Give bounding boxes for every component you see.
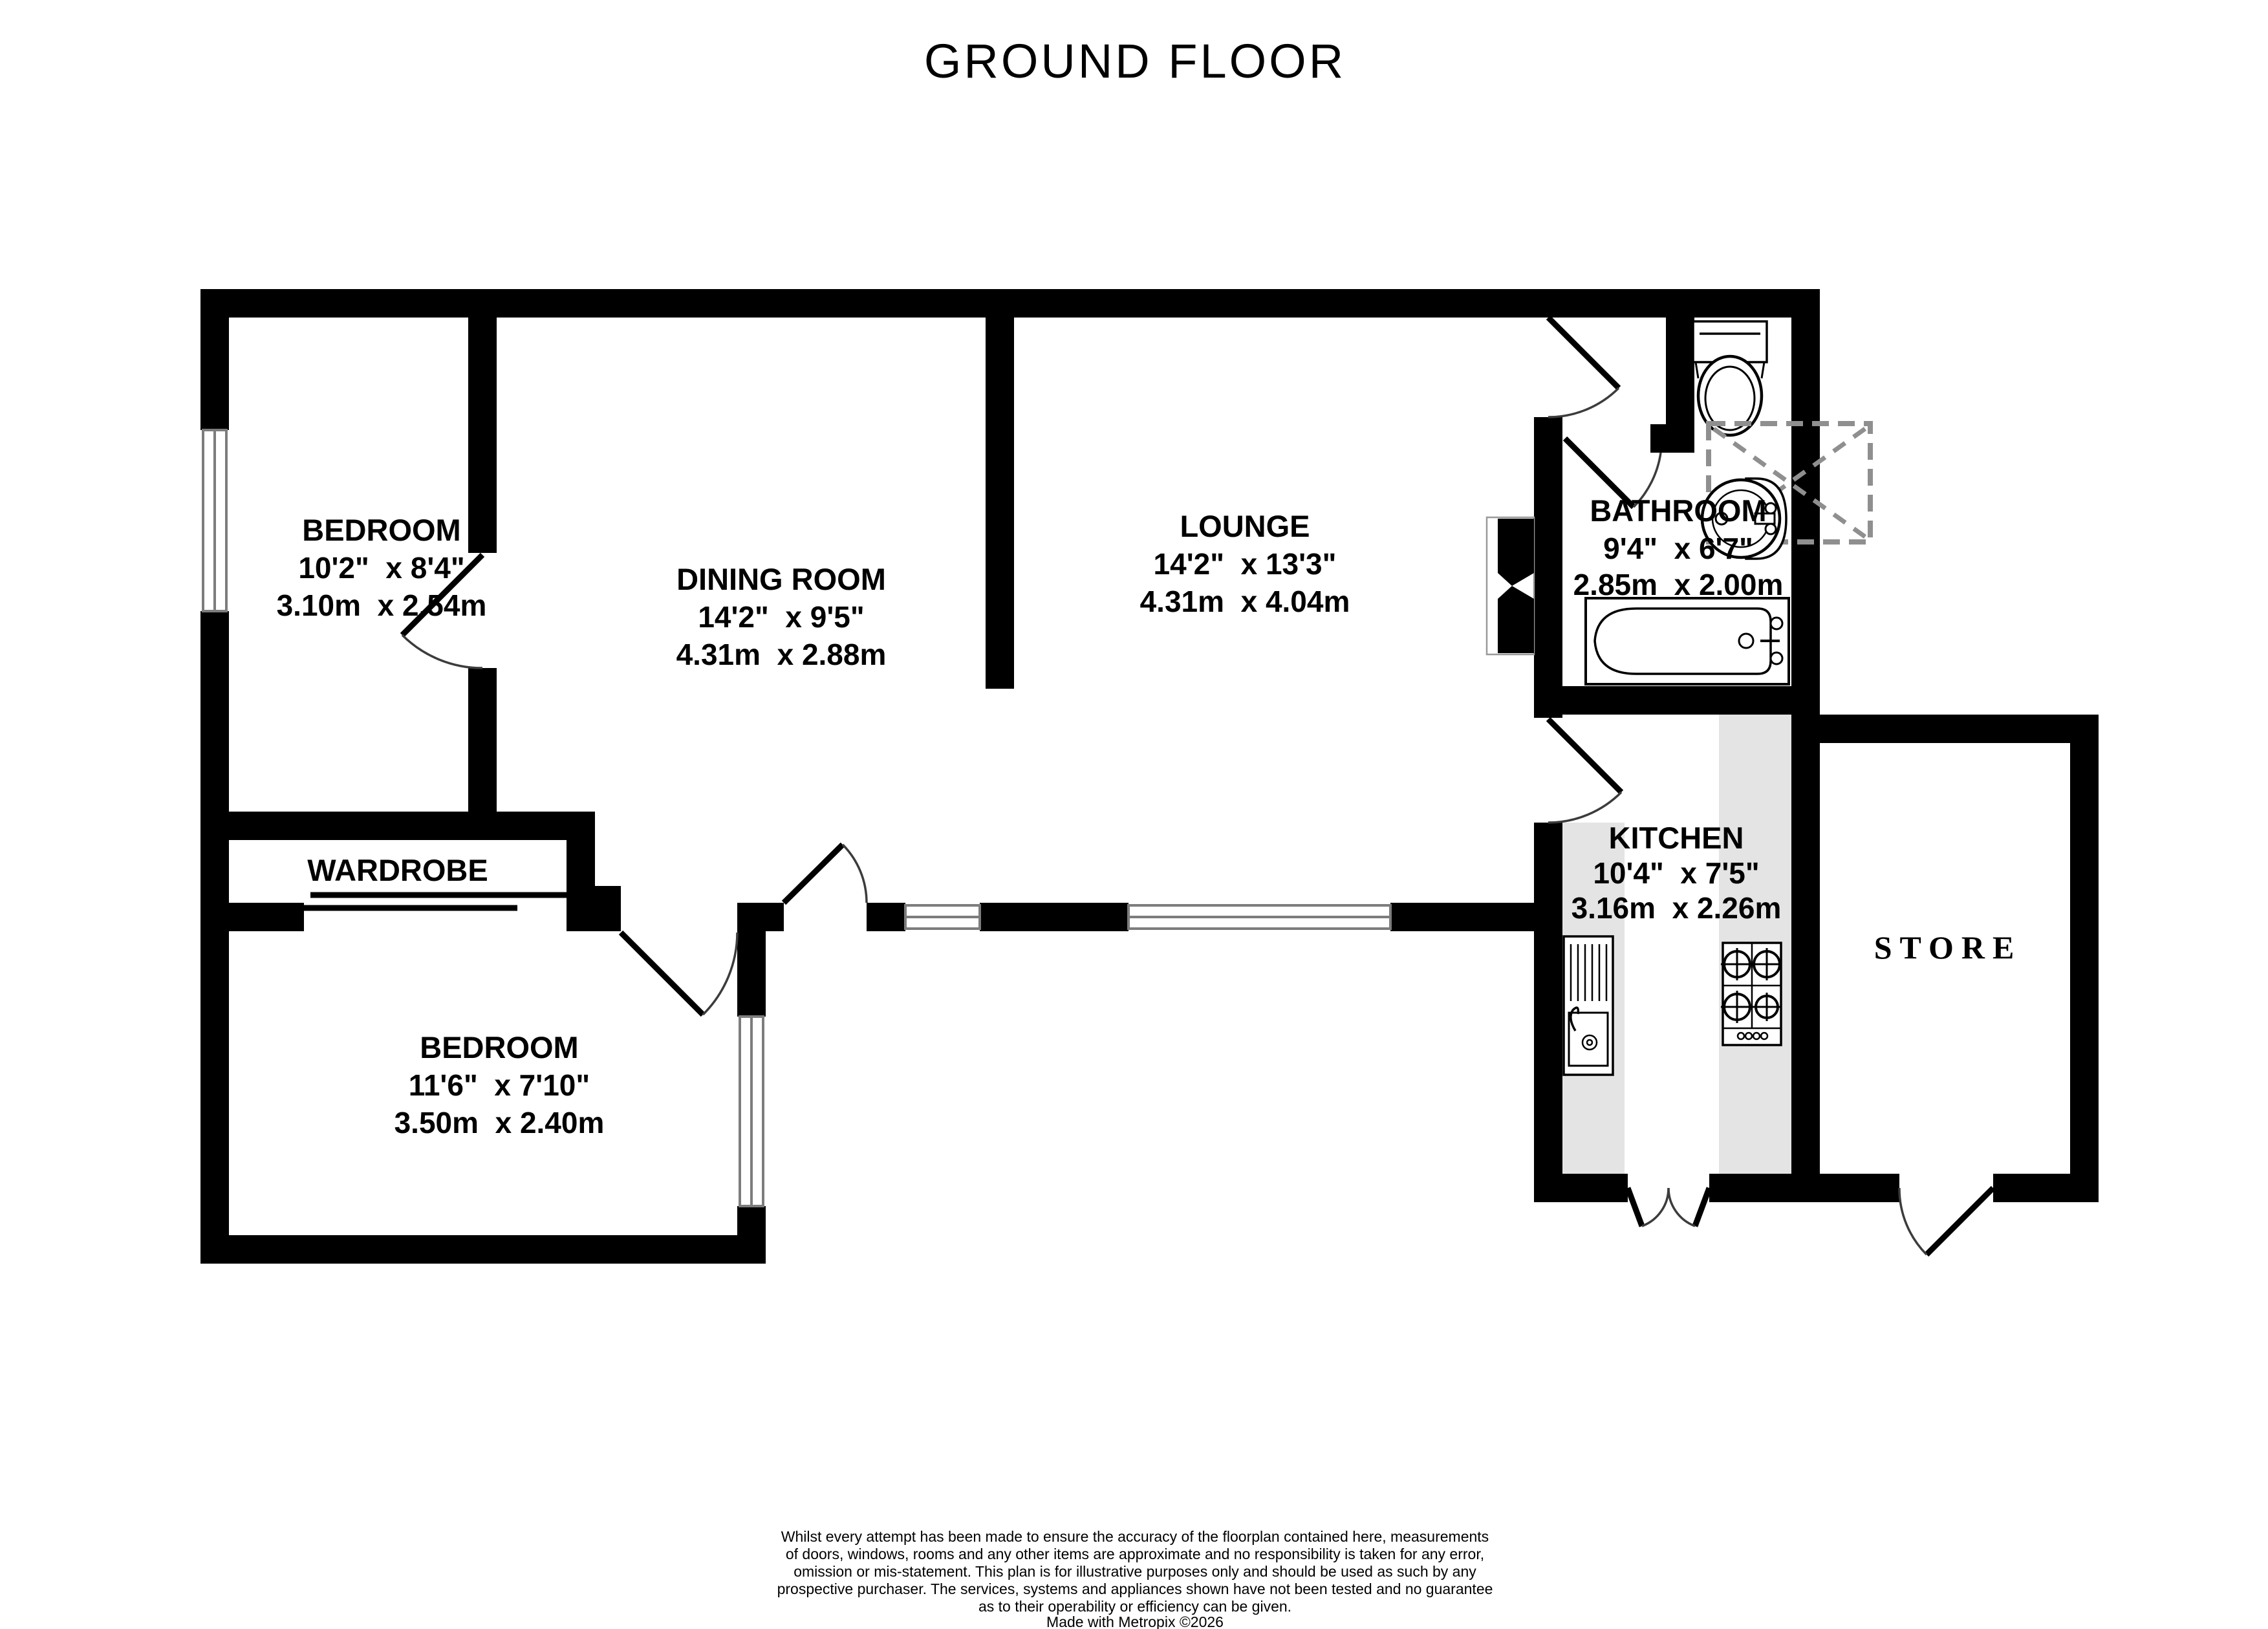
hob xyxy=(1721,943,1781,1045)
wall-bedroom2-right-lower xyxy=(737,1206,766,1264)
disclaimer: Whilst every attempt has been made to en… xyxy=(777,1528,1493,1629)
bathroom-dims-imperial: 9'4" x 6'7" xyxy=(1603,532,1753,565)
wall-store-right xyxy=(2070,743,2099,1202)
wall-left-upper xyxy=(200,318,229,430)
wall-left-lower xyxy=(200,611,229,1264)
bedroom1-name: BEDROOM xyxy=(302,513,460,547)
toilet xyxy=(1693,321,1767,435)
wall-store-bottom-right xyxy=(1993,1174,2099,1202)
disclaimer-line-1: Whilst every attempt has been made to en… xyxy=(781,1528,1489,1545)
room-label-store: STORE xyxy=(1874,929,2022,966)
disclaimer-line-4: prospective purchaser. The services, sys… xyxy=(777,1580,1493,1597)
made-with-credit: Made with Metropix ©2026 xyxy=(1046,1613,1224,1629)
room-label-lounge: LOUNGE 14'2" x 13'3" 4.31m x 4.04m xyxy=(1140,509,1350,618)
bedroom2-dims-imperial: 11'6" x 7'10" xyxy=(409,1068,590,1102)
front-door xyxy=(784,845,867,903)
disclaimer-line-3: omission or mis-statement. This plan is … xyxy=(794,1563,1476,1580)
dining-dims-metric: 4.31m x 2.88m xyxy=(676,638,887,671)
kitchen-name: KITCHEN xyxy=(1609,821,1744,855)
room-label-bathroom: BATHROOM 9'4" x 6'7" 2.85m x 2.00m xyxy=(1573,493,1784,601)
disclaimer-line-2: of doors, windows, rooms and any other i… xyxy=(786,1546,1484,1562)
wall-front-seg2 xyxy=(980,903,1129,931)
wall-bathroom-kitchen xyxy=(1562,686,1791,715)
room-label-wardrobe: WARDROBE xyxy=(307,853,488,887)
wardrobe-name: WARDROBE xyxy=(307,853,488,887)
kitchen-dims-imperial: 10'4" x 7'5" xyxy=(1593,856,1759,890)
lounge-dims-metric: 4.31m x 4.04m xyxy=(1140,585,1350,618)
bedroom2-name: BEDROOM xyxy=(420,1030,578,1064)
bathroom-name: BATHROOM xyxy=(1590,493,1766,528)
bedroom1-dims-metric: 3.10m x 2.54m xyxy=(277,588,487,622)
wall-right-wing-spine xyxy=(1791,318,1820,1202)
wall-hall-corner-block xyxy=(567,886,621,931)
wall-bedroom1-right-upper xyxy=(468,318,497,553)
fireplace xyxy=(1487,517,1534,654)
dining-dims-imperial: 14'2" x 9'5" xyxy=(698,600,864,634)
lounge-hall-door xyxy=(1548,318,1619,417)
bedroom2-window xyxy=(737,1017,766,1206)
wall-bedroom2-right-upper xyxy=(737,903,766,1017)
lounge-front-window xyxy=(1129,903,1390,931)
lounge-name: LOUNGE xyxy=(1180,509,1310,543)
kitchen-door xyxy=(1548,719,1621,823)
lounge-dims-imperial: 14'2" x 13'3" xyxy=(1154,547,1337,581)
kitchen-double-doors xyxy=(1628,1188,1709,1226)
floorplan-canvas: GROUND FLOOR xyxy=(0,0,2268,1629)
bedroom1-dims-imperial: 10'2" x 8'4" xyxy=(298,551,464,585)
wall-store-top xyxy=(1820,715,2099,743)
wall-store-bottom-left xyxy=(1820,1174,1899,1202)
wall-front-door-stub xyxy=(766,903,784,931)
wall-kitchen-bottom-left xyxy=(1534,1174,1628,1202)
room-label-bedroom-2: BEDROOM 11'6" x 7'10" 3.50m x 2.40m xyxy=(394,1030,605,1139)
front-window-small xyxy=(905,903,980,931)
store-name: STORE xyxy=(1874,929,2022,966)
wall-kitchen-bottom-right xyxy=(1709,1174,1791,1202)
kitchen-sink-unit xyxy=(1564,936,1613,1075)
wall-top xyxy=(200,289,1820,318)
wall-dining-lounge-divider xyxy=(986,318,1014,689)
page-title: GROUND FLOOR xyxy=(924,34,1346,88)
wall-lounge-right-upper xyxy=(1534,417,1562,718)
wall-bedroom1-wardrobe xyxy=(200,812,595,840)
kitchen-dims-metric: 3.16m x 2.26m xyxy=(1571,891,1782,925)
wardrobe-sliding-doors xyxy=(213,895,567,908)
wall-toilet-nook-stub xyxy=(1650,424,1694,453)
wall-bedroom2-bottom xyxy=(200,1235,766,1264)
disclaimer-line-5: as to their operability or efficiency ca… xyxy=(978,1598,1291,1615)
bedroom2-dims-metric: 3.50m x 2.40m xyxy=(394,1106,605,1139)
bedroom1-window xyxy=(200,430,229,611)
bathroom-dims-metric: 2.85m x 2.00m xyxy=(1573,568,1784,601)
room-label-bedroom-1: BEDROOM 10'2" x 8'4" 3.10m x 2.54m xyxy=(277,513,487,622)
dining-name: DINING ROOM xyxy=(676,562,886,596)
wall-front-seg3 xyxy=(1390,903,1534,931)
bedroom2-door xyxy=(621,933,737,1015)
bath xyxy=(1586,598,1789,684)
store-door xyxy=(1899,1188,1993,1255)
wall-front-seg1 xyxy=(867,903,905,931)
room-label-dining-room: DINING ROOM 14'2" x 9'5" 4.31m x 2.88m xyxy=(676,562,887,671)
wall-lounge-right-lower xyxy=(1534,823,1562,1174)
